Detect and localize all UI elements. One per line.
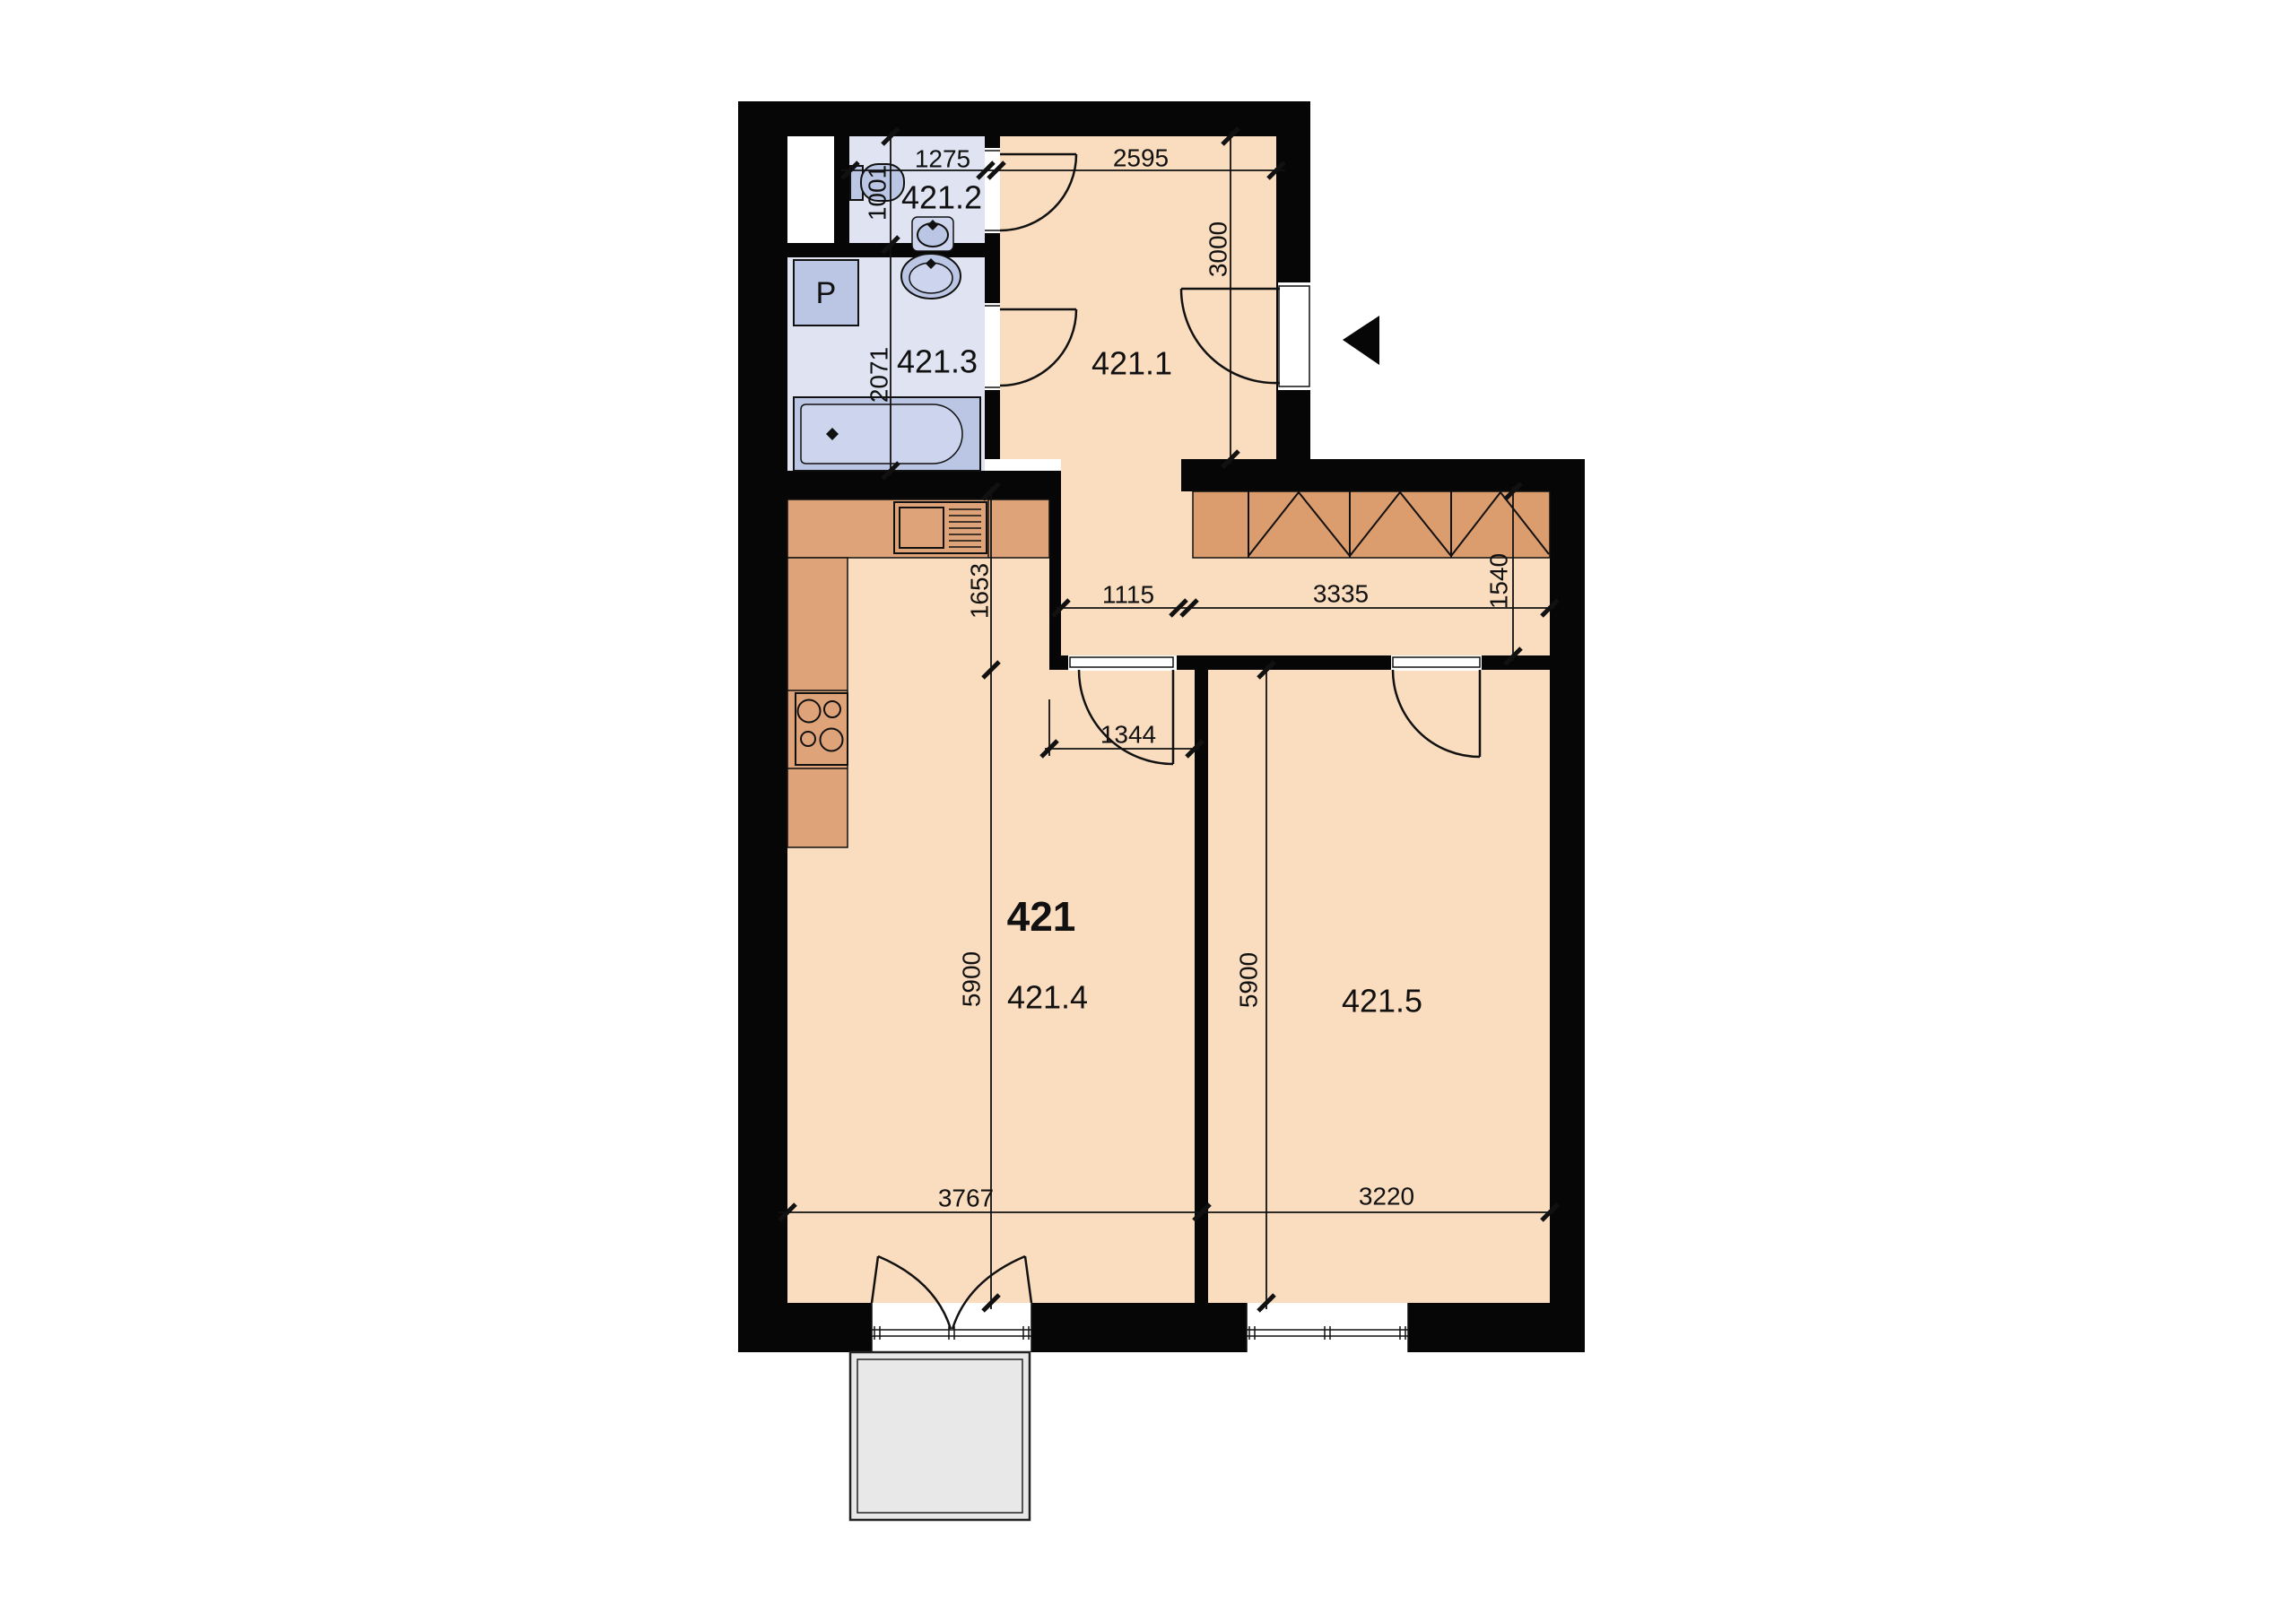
dim-bedroom-depth: 5900	[1235, 952, 1263, 1008]
entrance-arrow-icon	[1343, 316, 1379, 365]
unit-number-label: 421	[1007, 893, 1076, 940]
balcony-french-door	[872, 1303, 1031, 1352]
kitchen-sink-drainer	[949, 509, 981, 547]
room-label-421-1: 421.1	[1091, 345, 1172, 382]
wall-left	[738, 101, 787, 1352]
room-label-421-3: 421.3	[897, 343, 978, 380]
hall-floor	[1000, 136, 1276, 459]
bathroom-washbasin	[901, 254, 961, 299]
wall-top	[738, 101, 1310, 136]
wc-door-opening	[985, 148, 1000, 233]
passage-floor	[1061, 459, 1181, 655]
bedroom-window	[1247, 1303, 1408, 1352]
dim-bath-depth: 2071	[865, 347, 893, 403]
shaft-floor	[787, 136, 834, 243]
floors	[787, 136, 1550, 1303]
dim-passage-width: 1115	[1102, 581, 1154, 609]
dim-corridor-depth: 1540	[1485, 553, 1513, 609]
dim-wc-width: 1275	[915, 145, 970, 173]
room-label-421-4: 421.4	[1007, 979, 1088, 1016]
room-label-421-2: 421.2	[901, 179, 982, 216]
wall-bath-kitchen	[738, 471, 1061, 499]
wardrobe	[1193, 491, 1550, 558]
dim-living-door: 1344	[1100, 721, 1156, 749]
dim-hall-depth: 3000	[1205, 221, 1232, 277]
dim-wc-depth: 1001	[864, 165, 891, 221]
dim-kitchen-depth: 1653	[966, 563, 994, 619]
washing-machine: P	[794, 260, 858, 325]
dim-corridor-width: 3335	[1313, 580, 1369, 608]
wc-washbasin	[912, 217, 953, 251]
wall-bottom	[738, 1303, 1585, 1352]
bathtub	[794, 397, 980, 471]
washing-machine-label: P	[816, 276, 837, 310]
dim-living-depth: 5900	[958, 951, 986, 1007]
wall-corridor-top	[1181, 459, 1585, 491]
wall-shaft-wc	[834, 136, 849, 243]
bathroom-door-opening	[985, 303, 1000, 390]
entrance-door-opening	[1278, 282, 1310, 390]
room-label-421-5: 421.5	[1342, 983, 1422, 1020]
floor-plan-page: P	[0, 0, 2296, 1623]
balcony	[850, 1352, 1030, 1520]
dim-hall-width: 2595	[1113, 144, 1169, 172]
dim-living-width: 3767	[938, 1185, 994, 1212]
wall-kitchen-stub	[1049, 499, 1061, 670]
wardrobe-body	[1193, 491, 1550, 558]
dim-bedroom-width: 3220	[1359, 1183, 1414, 1211]
wall-right-lower	[1550, 459, 1585, 1352]
floor-plan-drawing: P	[0, 0, 2296, 1623]
